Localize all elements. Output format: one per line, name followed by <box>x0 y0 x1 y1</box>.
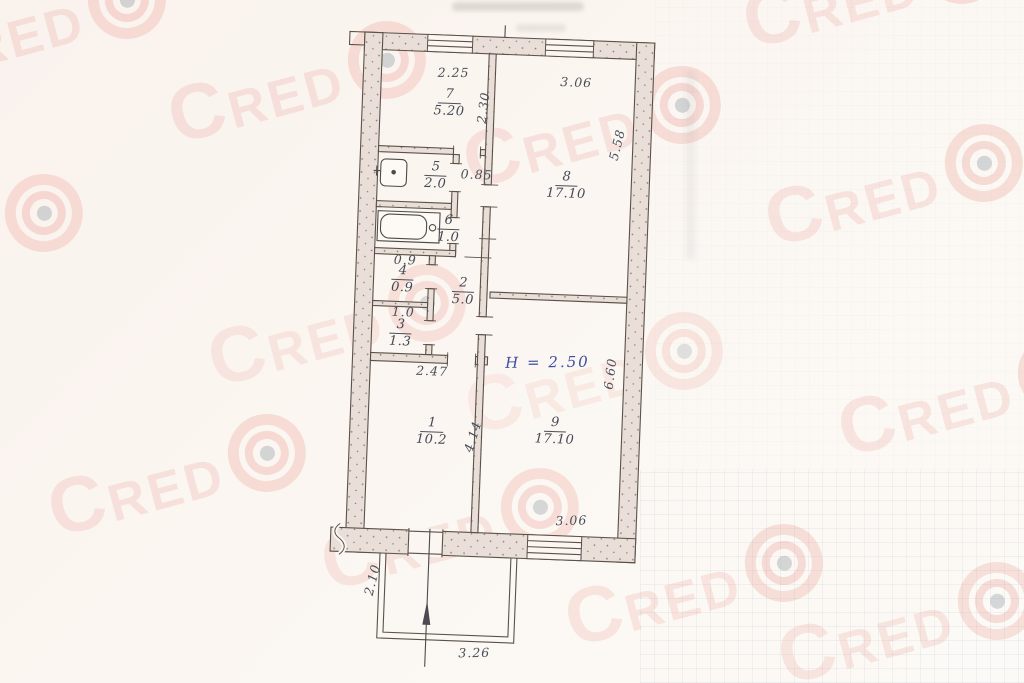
room-area: 5.20 <box>433 103 465 119</box>
room-area: 1.3 <box>389 333 412 349</box>
credo-target-icon <box>736 515 832 611</box>
room-7-label: 7 5.20 <box>433 87 465 119</box>
credo-watermark: CRED <box>734 0 1009 61</box>
dimension-passage-width: 0.85 <box>460 166 492 182</box>
room-area: 17.10 <box>546 185 586 202</box>
credo-target-icon <box>936 115 1024 211</box>
room-area: 2.0 <box>424 176 447 192</box>
room-area: 10.2 <box>416 431 448 447</box>
room-number: 9 <box>544 416 567 432</box>
room-3-label: 3 1.3 <box>389 318 412 350</box>
credo-target-icon <box>79 0 175 48</box>
credo-target-icon <box>219 405 315 501</box>
room-area: 17.10 <box>534 431 574 448</box>
room-area: 0.9 <box>391 279 414 295</box>
room-4-label: 4 0.9 <box>391 264 414 296</box>
room-9-label: 9 17.10 <box>534 415 575 447</box>
room-5-label: 5 2.0 <box>424 160 447 192</box>
dimension-balcony-width: 3.26 <box>458 645 490 660</box>
credo-watermark-text: CRED <box>756 137 948 258</box>
credo-watermark-text: CRED <box>829 347 1021 468</box>
credo-watermark-text: CRED <box>734 0 926 61</box>
bathtub-icon <box>377 211 440 243</box>
room-number: 4 <box>391 264 414 280</box>
room-number: 2 <box>452 276 475 292</box>
credo-watermark: CRED <box>0 165 92 309</box>
credo-target-icon <box>949 553 1024 649</box>
credo-target-icon <box>914 0 1010 13</box>
room-number: 7 <box>438 87 461 103</box>
room-area: 1.0 <box>437 229 460 245</box>
dimension-room8-width: 3.06 <box>560 74 592 90</box>
room-1-label: 1 10.2 <box>416 416 448 448</box>
room-number: 8 <box>555 170 578 186</box>
credo-watermark-text: CRED <box>159 34 351 155</box>
dimension-room1-width: 2.47 <box>416 363 448 379</box>
credo-watermark-text: CRED <box>39 427 231 548</box>
room-number: 1 <box>421 416 444 432</box>
room-area: 5.0 <box>451 292 474 308</box>
dimension-room9-window-width: 3.06 <box>555 512 587 528</box>
credo-watermark: CRED <box>829 325 1024 469</box>
room-2-label: 2 5.0 <box>451 276 474 308</box>
scanned-floor-plan-page: CREDCREDCREDCREDCREDCREDCREDCREDCREDCRED… <box>0 0 1024 683</box>
credo-watermark: CRED <box>0 0 175 96</box>
floor-plan: 2.25 2.30 3.06 5.58 0.85 0.9 1.0 2.47 4.… <box>313 11 683 683</box>
dimension-room7-width: 2.25 <box>438 65 470 80</box>
room-8-label: 8 17.10 <box>546 170 587 202</box>
room-number: 5 <box>424 160 447 176</box>
balcony-outline <box>377 553 517 643</box>
credo-target-icon <box>0 165 92 261</box>
ceiling-height-note: H = 2.50 <box>505 353 590 372</box>
credo-watermark: CRED <box>39 405 314 549</box>
room-number: 3 <box>389 318 412 334</box>
room-6-label: 6 1.0 <box>437 213 460 245</box>
credo-watermark: CRED <box>756 115 1024 259</box>
room-number: 6 <box>437 213 460 229</box>
credo-watermark-text: CRED <box>0 0 92 96</box>
